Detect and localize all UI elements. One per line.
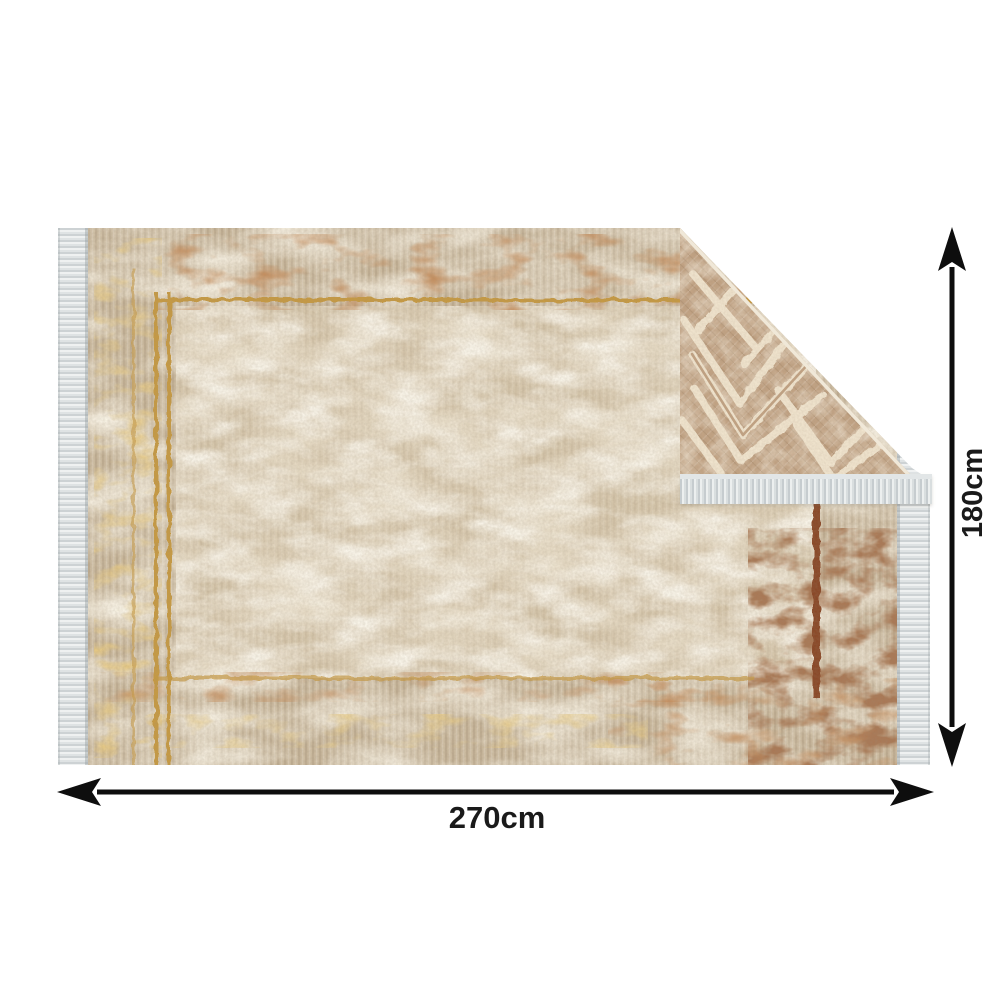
arrowhead-right-icon bbox=[890, 778, 934, 806]
arrowhead-down-icon bbox=[938, 723, 966, 767]
left-fringe bbox=[58, 228, 88, 765]
rug-image bbox=[58, 228, 930, 765]
rug-back-flap bbox=[680, 228, 932, 506]
chevron-pattern bbox=[680, 228, 932, 478]
product-image: 180cm 270cm bbox=[0, 0, 1000, 1000]
arrowhead-left-icon bbox=[57, 778, 101, 806]
height-label: 180cm bbox=[956, 433, 990, 553]
arrowhead-up-icon bbox=[938, 227, 966, 271]
width-label: 270cm bbox=[397, 801, 597, 835]
flap-fringe bbox=[680, 474, 932, 504]
